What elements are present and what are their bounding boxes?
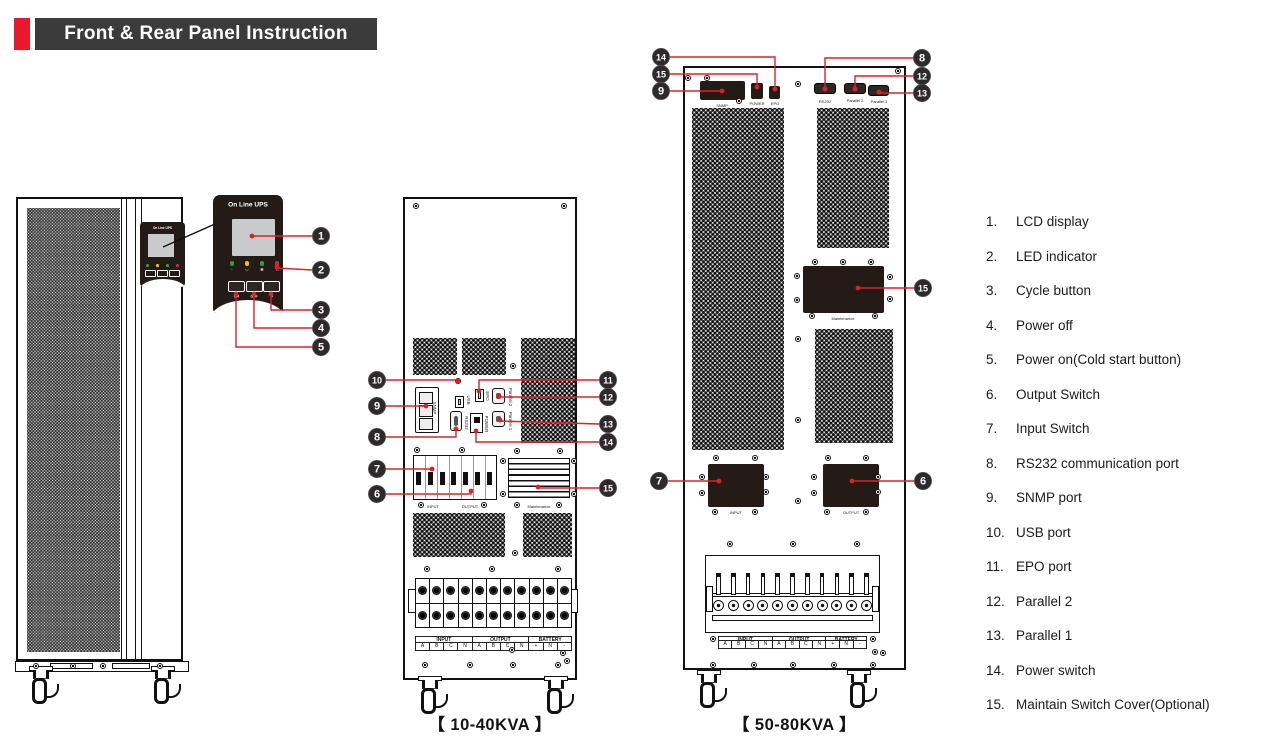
- vent-grille: [692, 108, 784, 450]
- screw-icon: [710, 662, 716, 668]
- header-accent-bar: [14, 18, 30, 50]
- terminal-group-input: INPUTABCN: [416, 637, 473, 650]
- callout-circle-13: [913, 84, 930, 101]
- terminal-phase-label: N: [544, 643, 558, 650]
- legend-item-label: Cycle button: [1016, 284, 1258, 298]
- alarm-led: △: [273, 261, 282, 273]
- breaker-handle: [487, 472, 492, 485]
- panel-button-label: ON: [234, 295, 239, 299]
- callout-number-15: 15: [656, 70, 666, 80]
- screw-icon: [704, 75, 710, 81]
- callout-circle-6: [368, 485, 385, 502]
- screw-icon: [824, 509, 830, 515]
- screw-icon: [763, 489, 769, 495]
- screw-icon: [414, 447, 420, 453]
- terminal-cells: +N-: [826, 641, 866, 648]
- battery-led-symbol-icon: ▭: [245, 268, 248, 271]
- legend-item: 6.Output Switch: [986, 388, 1258, 402]
- busbar-terminal: [816, 573, 829, 625]
- callout-number-5: 5: [318, 342, 324, 354]
- terminal-phase-label: +: [826, 641, 840, 648]
- callout-number-14: 14: [603, 438, 613, 448]
- ac-led-small: [146, 264, 149, 267]
- legend-item-label: LED indicator: [1016, 250, 1258, 264]
- screw-icon: [752, 455, 758, 461]
- screw-icon: [795, 417, 801, 423]
- terminal-screw-head: [503, 611, 512, 620]
- legend-item: 11.EPO port: [986, 560, 1258, 574]
- terminal-screw-head: [787, 600, 798, 611]
- terminal-blade: [820, 573, 825, 595]
- input-label: INPUT: [721, 511, 751, 515]
- caster-wheel: [24, 666, 60, 708]
- legend-item-number: 13.: [986, 629, 1016, 643]
- vent-grille: [521, 338, 575, 443]
- terminal-cells: +N-: [529, 643, 571, 650]
- legend-item: 14.Power switch: [986, 664, 1258, 678]
- callout-number-8: 8: [919, 53, 925, 65]
- rs232-port: [450, 411, 462, 431]
- legend-item-label: Power off: [1016, 319, 1258, 333]
- legend-item: 13.Parallel 1: [986, 629, 1258, 643]
- screw-icon: [571, 491, 577, 497]
- callout-number-11: 11: [603, 376, 613, 386]
- panel-button-small: [145, 270, 156, 277]
- legend-item-number: 8.: [986, 457, 1016, 471]
- parallel1-label: Parallel 1: [864, 100, 894, 104]
- terminal-screw-head: [846, 600, 857, 611]
- parallel-2-port: [844, 83, 866, 94]
- terminal-screw-head: [489, 586, 498, 595]
- callout-circle-5: [312, 338, 329, 355]
- terminal-cell: [459, 579, 473, 603]
- screw-icon: [459, 447, 465, 453]
- busbar-terminal: [712, 573, 725, 625]
- busbar-terminal: [756, 573, 769, 625]
- output-switch-cover: [823, 464, 879, 507]
- switch-rocker: [474, 417, 480, 423]
- screw-icon: [489, 566, 495, 572]
- callout-circle-2: [312, 261, 329, 278]
- wheel-tire: [547, 688, 562, 714]
- base-slot: [112, 663, 150, 669]
- input-label: INPUT: [418, 505, 448, 509]
- terminal-screw-head: [446, 611, 455, 620]
- terminal-group-battery: BATTERY+N-: [826, 637, 866, 648]
- screw-icon: [557, 448, 563, 454]
- legend-item-number: 14.: [986, 664, 1016, 678]
- screw-icon: [413, 203, 419, 209]
- terminal-screw-head: [432, 586, 441, 595]
- screw-icon: [875, 474, 881, 480]
- page-title: Front & Rear Panel Instruction: [64, 23, 347, 45]
- terminal-screw-head: [517, 586, 526, 595]
- screw-icon: [561, 203, 567, 209]
- terminal-screw-head: [475, 586, 484, 595]
- screw-icon: [712, 509, 718, 515]
- breaker-handle: [440, 472, 445, 485]
- screw-icon: [763, 474, 769, 480]
- terminal-phase-label: B: [430, 643, 444, 650]
- callout-number-6: 6: [920, 476, 926, 488]
- screw-icon: [794, 297, 800, 303]
- terminal-screw-head: [546, 611, 555, 620]
- legend-item: 4.Power off: [986, 319, 1258, 333]
- vent-grille: [817, 108, 889, 248]
- terminal-phase-label: -: [854, 641, 867, 648]
- screw-icon: [875, 489, 881, 495]
- wheel-brake: [715, 688, 727, 702]
- terminal-blade: [805, 573, 810, 595]
- callout-circle-12: [913, 67, 930, 84]
- legend-item-label: Input Switch: [1016, 422, 1258, 436]
- panel-curve: [213, 300, 283, 313]
- terminal-phase-label: C: [444, 643, 458, 650]
- terminal-blade: [716, 573, 721, 595]
- caster-wheel: [146, 666, 182, 708]
- screw-icon: [710, 636, 716, 642]
- usb-slot: [458, 399, 461, 405]
- wheel-tire: [850, 682, 865, 708]
- screw-icon: [424, 566, 430, 572]
- callout-number-9: 9: [374, 401, 380, 413]
- legend-list: 1.LCD display2.LED indicator3.Cycle butt…: [986, 215, 1258, 733]
- legend-item: 2.LED indicator: [986, 250, 1258, 264]
- rs232-label: RS232: [810, 100, 840, 104]
- terminal-cell: [459, 604, 473, 628]
- terminal-blade: [761, 573, 766, 595]
- maintenance-cover: [803, 266, 884, 313]
- battery-led: ▭: [243, 261, 252, 273]
- led-indicator-row: ~▭▣△: [228, 261, 282, 273]
- terminal-group-battery: BATTERY+N-: [529, 637, 571, 650]
- callout-circle-11: [599, 371, 616, 388]
- lcd-display: [232, 219, 275, 256]
- terminal-group-input: INPUTABCN: [719, 637, 773, 648]
- terminal-blade: [790, 573, 795, 595]
- terminal-cell: [544, 604, 558, 628]
- callout-circle-6: [914, 472, 931, 489]
- terminal-screw-head: [475, 611, 484, 620]
- terminal-phase-label: B: [487, 643, 501, 650]
- panel-button-on: ON: [228, 281, 245, 300]
- parallel1-label: Parallel 1: [508, 405, 512, 438]
- legend-item-number: 10.: [986, 526, 1016, 540]
- control-panel-detail: On Line UPS ~▭▣△ ONOFF↵: [213, 195, 283, 313]
- terminal-cell: [515, 579, 529, 603]
- callout-number-7: 7: [374, 464, 380, 476]
- screw-icon: [880, 650, 886, 656]
- panel-button-label: ↵: [270, 295, 273, 299]
- power-switch: [470, 413, 483, 433]
- terminal-label-strip: INPUTABCNOUTPUTABCNBATTERY+N-: [415, 636, 572, 651]
- terminal-cell: [558, 579, 571, 603]
- callout-number-13: 13: [917, 89, 927, 99]
- terminal-phase-label: N: [458, 643, 471, 650]
- legend-item-number: 15.: [986, 698, 1016, 712]
- wheel-brake: [562, 694, 574, 708]
- busbar-terminal: [742, 573, 755, 625]
- terminal-block: [415, 578, 572, 628]
- terminal-cell: [487, 604, 501, 628]
- callout-circle-9: [652, 82, 669, 99]
- callout-number-12: 12: [917, 72, 927, 82]
- wheel-tire: [700, 682, 715, 708]
- legend-item-number: 4.: [986, 319, 1016, 333]
- terminal-label-strip: INPUTABCNOUTPUTABCNBATTERY+N-: [718, 636, 867, 649]
- terminal-screw-head: [831, 600, 842, 611]
- screw-icon: [33, 663, 39, 669]
- panel-button-label: OFF: [251, 295, 258, 299]
- busbar-terminal: [845, 573, 858, 625]
- terminal-screw-head: [560, 611, 569, 620]
- screw-icon: [514, 448, 520, 454]
- terminal-screw-head: [861, 600, 872, 611]
- callout-circle-4: [312, 319, 329, 336]
- bypass-led-small: [166, 264, 169, 267]
- terminal-blade: [775, 573, 780, 595]
- callout-number-8: 8: [374, 432, 380, 444]
- screw-icon: [895, 68, 901, 74]
- screw-icon: [752, 509, 758, 515]
- terminal-row: [416, 579, 571, 604]
- terminal-blade: [864, 573, 869, 595]
- screw-icon: [510, 363, 516, 369]
- screw-icon: [70, 663, 76, 669]
- manual-page: Front & Rear Panel Instruction On Line U…: [0, 0, 1263, 750]
- rs232-label: RS232: [464, 407, 468, 440]
- battery-led-small: [156, 264, 159, 267]
- snmp-label: SNMP: [707, 104, 737, 108]
- legend-item-label: Output Switch: [1016, 388, 1258, 402]
- terminal-screw-head: [418, 611, 427, 620]
- terminal-screw-head: [772, 600, 783, 611]
- wheel-brake: [47, 684, 59, 698]
- screw-icon: [887, 296, 893, 302]
- screw-icon: [685, 75, 691, 81]
- busbar-terminal: [801, 573, 814, 625]
- legend-item-number: 3.: [986, 284, 1016, 298]
- panel-button-↵: ↵: [263, 281, 280, 300]
- screw-icon: [157, 663, 163, 669]
- legend-item-label: Power on(Cold start button): [1016, 353, 1258, 367]
- screw-icon: [795, 336, 801, 342]
- legend-item: 3.Cycle button: [986, 284, 1258, 298]
- legend-item: 9.SNMP port: [986, 491, 1258, 505]
- callout-circle-3: [312, 301, 329, 318]
- legend-item: 12.Parallel 2: [986, 595, 1258, 609]
- terminal-cell: [416, 579, 430, 603]
- screw-icon: [790, 662, 796, 668]
- wheel-tire: [32, 678, 47, 704]
- callout-number-10: 10: [372, 376, 382, 386]
- terminal-screw-head: [461, 611, 470, 620]
- terminal-phase-label: B: [732, 641, 745, 648]
- callout-number-9: 9: [658, 86, 664, 98]
- breaker-handle: [451, 472, 456, 485]
- screw-icon: [500, 491, 506, 497]
- legend-item-label: Parallel 1: [1016, 629, 1258, 643]
- terminal-group-output: OUTPUTABCN: [773, 637, 827, 648]
- legend-item-label: Maintain Switch Cover(Optional): [1016, 698, 1258, 712]
- callout-circle-8: [913, 49, 930, 66]
- screw-icon: [831, 662, 837, 668]
- terminal-cells: ABCN: [773, 641, 826, 648]
- callout-circle-15: [652, 65, 669, 82]
- callout-number-2: 2: [318, 265, 324, 277]
- callout-number-15: 15: [918, 284, 928, 294]
- vent-grille: [413, 513, 505, 557]
- screw-icon: [100, 663, 106, 669]
- terminal-cells: ABCN: [416, 643, 472, 650]
- terminal-cell: [530, 579, 544, 603]
- terminal-screw-head: [517, 611, 526, 620]
- legend-item: 7.Input Switch: [986, 422, 1258, 436]
- screw-icon: [809, 313, 815, 319]
- legend-item-number: 12.: [986, 595, 1016, 609]
- front-seam-line: [135, 199, 136, 660]
- callout-number-1: 1: [318, 231, 324, 243]
- callout-circle-7: [650, 472, 667, 489]
- terminal-phase-label: +: [529, 643, 543, 650]
- terminal-cell: [473, 579, 487, 603]
- panel-button-row: ONOFF↵: [228, 281, 280, 300]
- breaker-handle: [428, 472, 433, 485]
- terminal-phase-label: C: [800, 641, 813, 648]
- callout-number-4: 4: [318, 323, 325, 335]
- terminal-phase-label: N: [813, 641, 825, 648]
- terminal-cell: [487, 579, 501, 603]
- legend-item-number: 9.: [986, 491, 1016, 505]
- terminal-screw-head: [757, 600, 768, 611]
- terminal-screw-head: [817, 600, 828, 611]
- busbar-terminal: [786, 573, 799, 625]
- output-label: OUTPUT: [836, 511, 866, 515]
- callout-number-15: 15: [603, 484, 613, 494]
- alarm-led-symbol-icon: △: [276, 268, 279, 271]
- wheel-brake: [865, 688, 877, 702]
- terminal-screw-head: [802, 600, 813, 611]
- db9-pins: [496, 393, 501, 399]
- legend-item: 8.RS232 communication port: [986, 457, 1258, 471]
- busbar-terminal: [727, 573, 740, 625]
- db9-pins: [496, 416, 501, 422]
- bypass-led: ▣: [258, 261, 267, 273]
- terminal-screw-head: [418, 586, 427, 595]
- screw-icon: [455, 378, 461, 384]
- legend-item-label: LCD display: [1016, 215, 1258, 229]
- snmp-label: SNMP: [432, 392, 436, 425]
- screw-icon: [811, 490, 817, 496]
- terminal-cell: [416, 604, 430, 628]
- screw-icon: [467, 662, 473, 668]
- terminal-screw-head: [461, 586, 470, 595]
- ac-led: ~: [228, 261, 237, 273]
- terminal-side-tab: [872, 586, 879, 612]
- screw-icon: [556, 502, 562, 508]
- terminal-phase-label: A: [473, 643, 487, 650]
- maintenance-cover: [508, 458, 570, 498]
- led-row-small: [146, 264, 179, 267]
- terminal-cell: [515, 604, 529, 628]
- rs232-port: [814, 83, 836, 94]
- input-switch-cover: [708, 464, 764, 507]
- callout-circle-1: [312, 227, 329, 244]
- panel-button: [228, 281, 245, 292]
- panel-button-off: OFF: [246, 281, 263, 300]
- screw-icon: [825, 455, 831, 461]
- screw-icon: [514, 502, 520, 508]
- terminal-screw-head: [560, 586, 569, 595]
- screw-icon: [699, 490, 705, 496]
- terminal-phase-label: A: [416, 643, 430, 650]
- callout-circle-15: [599, 479, 616, 496]
- alarm-led-icon: [275, 261, 280, 266]
- terminal-screw-head: [728, 600, 739, 611]
- wheel-brake: [169, 684, 181, 698]
- wheel-brake: [436, 694, 448, 708]
- callout-circle-12: [599, 388, 616, 405]
- screw-icon: [560, 650, 566, 656]
- legend-item: 1.LCD display: [986, 215, 1258, 229]
- callout-number-3: 3: [318, 305, 324, 317]
- screw-icon: [872, 313, 878, 319]
- terminal-phase-label: A: [773, 641, 786, 648]
- terminal-screw-head: [489, 611, 498, 620]
- terminal-cell: [444, 579, 458, 603]
- caption-50-80kva: 【 50-80KVA 】: [683, 711, 906, 735]
- maintenance-label: Maintenance: [828, 317, 858, 321]
- screw-icon: [868, 259, 874, 265]
- terminal-cell: [444, 604, 458, 628]
- callout-number-6: 6: [374, 489, 380, 501]
- callout-number-7: 7: [656, 476, 662, 488]
- power-label: POWER: [484, 408, 488, 441]
- screw-icon: [863, 455, 869, 461]
- terminal-blade: [849, 573, 854, 595]
- legend-item-number: 6.: [986, 388, 1016, 402]
- legend-item: 15.Maintain Switch Cover(Optional): [986, 698, 1258, 712]
- front-control-panel: On Line UPS: [140, 222, 185, 287]
- callout-circle-13: [599, 415, 616, 432]
- usb-port: [455, 396, 464, 408]
- vent-grille: [462, 338, 506, 375]
- terminal-phase-label: C: [746, 641, 759, 648]
- caster-wheel: [539, 676, 575, 718]
- epo-port: [475, 389, 484, 402]
- alarm-led-small: [176, 264, 179, 267]
- ac-led-icon: [230, 261, 235, 266]
- screw-icon: [500, 458, 506, 464]
- terminal-screw-head: [432, 611, 441, 620]
- terminal-blade: [731, 573, 736, 595]
- legend-item-label: Power switch: [1016, 664, 1258, 678]
- terminal-phase-label: N: [759, 641, 771, 648]
- terminal-phase-label: N: [515, 643, 528, 650]
- terminal-cell: [530, 604, 544, 628]
- legend-item-label: SNMP port: [1016, 491, 1258, 505]
- screw-icon: [854, 541, 860, 547]
- vent-grille: [815, 329, 893, 443]
- input-output-breaker: [413, 455, 497, 500]
- parallel-1-port: [492, 411, 505, 427]
- screw-icon: [794, 273, 800, 279]
- terminal-cell: [501, 579, 515, 603]
- terminal-cell: [430, 604, 444, 628]
- legend-item-number: 7.: [986, 422, 1016, 436]
- screw-icon: [713, 455, 719, 461]
- caster-wheel: [413, 676, 449, 718]
